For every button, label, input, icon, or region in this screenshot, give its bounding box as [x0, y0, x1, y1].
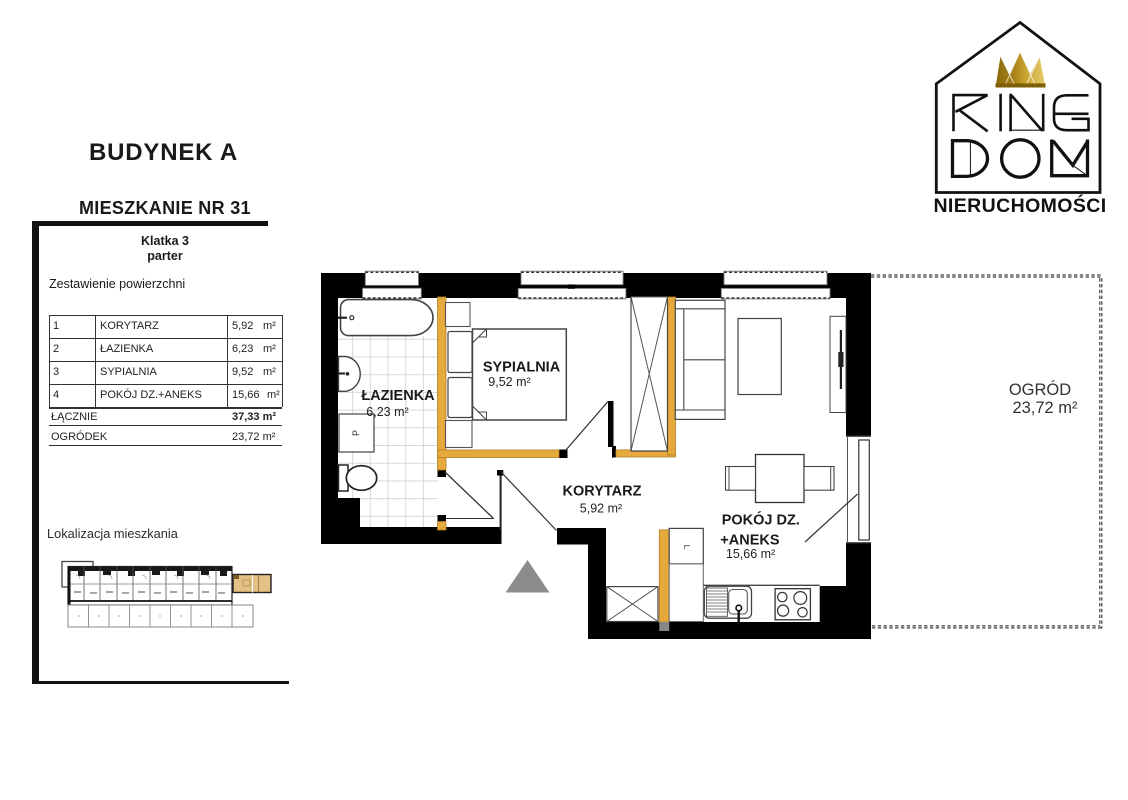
svg-text:NIERUCHOMOŚCI: NIERUCHOMOŚCI — [933, 193, 1106, 217]
svg-text:ŁAZIENKA: ŁAZIENKA — [361, 388, 435, 404]
svg-text:23,72 m²: 23,72 m² — [1012, 399, 1078, 417]
svg-text:SYPIALNIA: SYPIALNIA — [483, 360, 561, 376]
svg-text:OGRÓD: OGRÓD — [1009, 380, 1071, 399]
svg-text:L: L — [682, 545, 692, 550]
svg-text:15,66 m²: 15,66 m² — [726, 547, 775, 561]
svg-text:5,92 m²: 5,92 m² — [580, 502, 622, 516]
svg-text:9,52 m²: 9,52 m² — [488, 375, 530, 389]
svg-text:POKÓJ DZ.: POKÓJ DZ. — [722, 511, 800, 529]
svg-text:KORYTARZ: KORYTARZ — [563, 484, 642, 500]
svg-text:6,23 m²: 6,23 m² — [366, 405, 408, 419]
svg-text:P: P — [351, 430, 361, 436]
